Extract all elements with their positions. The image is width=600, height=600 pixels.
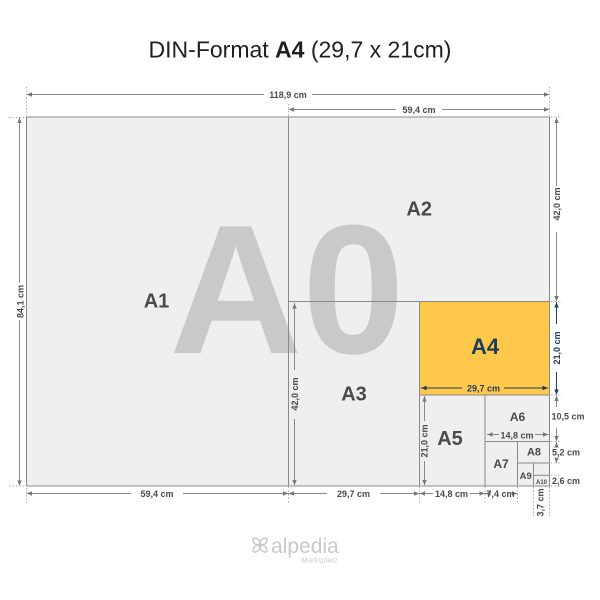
svg-text:21,0 cm: 21,0 cm [420, 424, 430, 457]
svg-text:59,4 cm: 59,4 cm [402, 105, 435, 115]
svg-text:29,7 cm: 29,7 cm [467, 384, 500, 394]
svg-text:14,8 cm: 14,8 cm [435, 489, 468, 499]
svg-text:A8: A8 [527, 447, 541, 459]
svg-text:42,0 cm: 42,0 cm [290, 377, 300, 410]
svg-text:21,0 cm: 21,0 cm [552, 331, 562, 364]
svg-text:10,5 cm: 10,5 cm [551, 412, 584, 422]
svg-text:5,2 cm: 5,2 cm [552, 447, 580, 457]
svg-text:A5: A5 [437, 428, 463, 450]
svg-text:14,8 cm: 14,8 cm [500, 431, 533, 441]
svg-text:59,4 cm: 59,4 cm [140, 489, 173, 499]
svg-text:A2: A2 [406, 198, 432, 220]
svg-text:29,7 cm: 29,7 cm [337, 489, 370, 499]
svg-text:7,4 cm: 7,4 cm [486, 489, 514, 499]
svg-text:A6: A6 [510, 410, 526, 424]
svg-text:Marktplatz: Marktplatz [301, 556, 338, 565]
svg-text:42,0 cm: 42,0 cm [552, 187, 562, 220]
svg-text:A1: A1 [144, 291, 170, 313]
svg-text:3,7 cm: 3,7 cm [536, 488, 546, 516]
svg-text:A7: A7 [493, 457, 509, 471]
svg-text:A0: A0 [169, 186, 404, 392]
svg-text:2,6 cm: 2,6 cm [552, 476, 580, 486]
svg-text:DIN-Format A4 (29,7 x 21cm): DIN-Format A4 (29,7 x 21cm) [149, 36, 452, 62]
svg-text:A10: A10 [536, 480, 548, 486]
svg-text:118,9 cm: 118,9 cm [269, 90, 307, 100]
svg-text:A9: A9 [520, 471, 532, 482]
svg-text:A3: A3 [341, 384, 367, 406]
svg-text:A4: A4 [471, 334, 500, 359]
svg-text:84,1 cm: 84,1 cm [16, 285, 26, 318]
